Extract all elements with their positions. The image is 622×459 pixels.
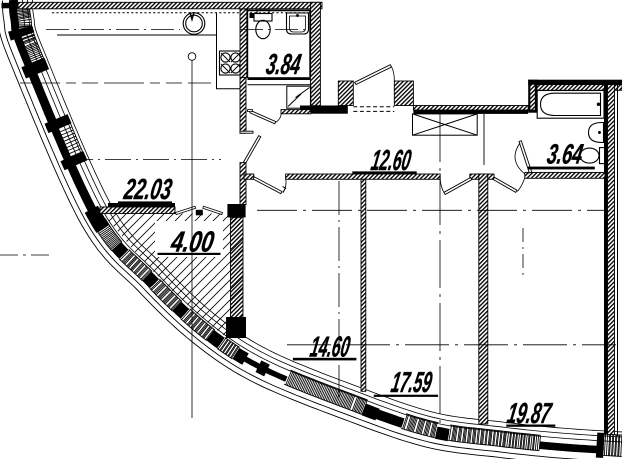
- svg-text:17.59: 17.59: [389, 367, 435, 399]
- svg-text:3.84: 3.84: [264, 49, 304, 81]
- svg-text:22.03: 22.03: [121, 174, 174, 206]
- svg-text:3.64: 3.64: [545, 137, 586, 169]
